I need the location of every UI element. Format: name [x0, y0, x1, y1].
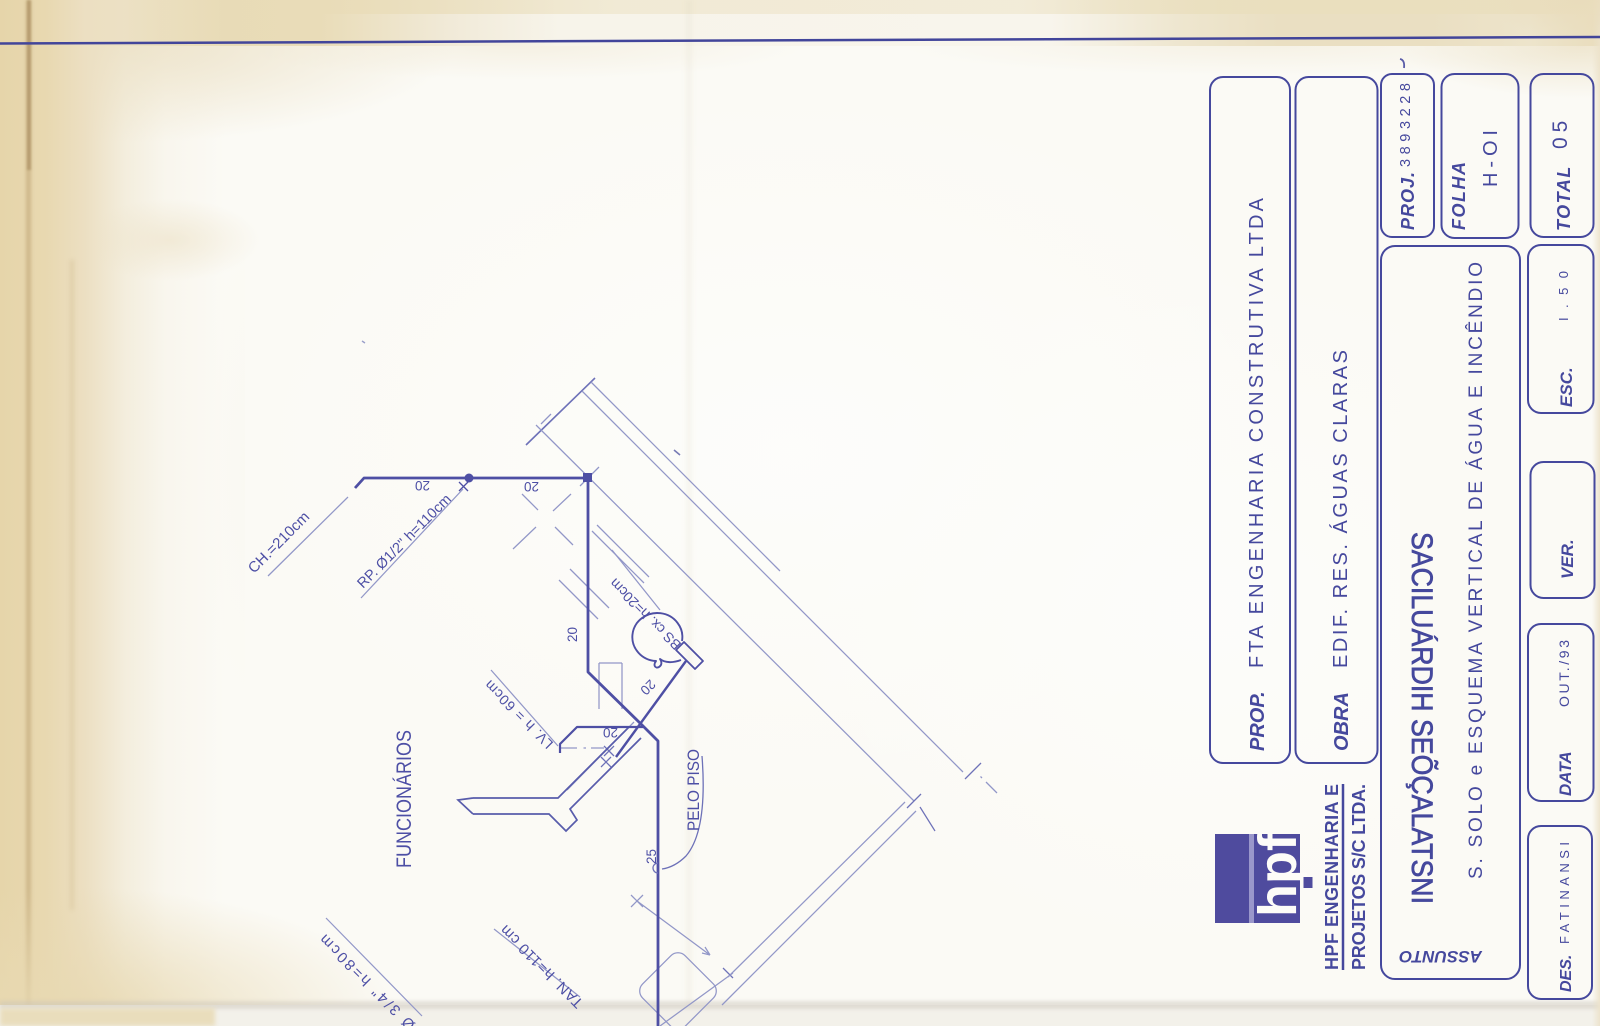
svg-text:TAN. h=110 cm: TAN. h=110 cm — [497, 921, 587, 1011]
svg-text:FATINANSI: FATINANSI — [1557, 842, 1572, 944]
svg-text:20: 20 — [524, 479, 539, 494]
svg-text:FOLHA: FOLHA — [1449, 161, 1469, 231]
svg-text:RP. Ø1/2" h=110cm: RP. Ø1/2" h=110cm — [355, 491, 455, 591]
svg-text:20: 20 — [603, 725, 618, 740]
svg-text:05: 05 — [1549, 116, 1572, 149]
svg-text:CH.=210cm: CH.=210cm — [245, 509, 313, 577]
svg-text:Ø 3/4" h=80cm: Ø 3/4" h=80cm — [316, 931, 419, 1026]
svg-text:LV. h = 60cm: LV. h = 60cm — [481, 677, 556, 752]
svg-text:VER.: VER. — [1558, 539, 1577, 579]
svg-text:HPF ENGENHARIA E: HPF ENGENHARIA E — [1322, 784, 1342, 970]
svg-text:20: 20 — [565, 627, 580, 642]
svg-text:FTA ENGENHARIA CONSTRUTIVA LTD: FTA ENGENHARIA CONSTRUTIVA LTDA — [1246, 197, 1268, 668]
svg-text:PROJ.: PROJ. — [1398, 171, 1418, 230]
svg-text:DATA: DATA — [1556, 751, 1575, 796]
svg-text:H-OI: H-OI — [1480, 130, 1502, 187]
svg-text:PELO PISO: PELO PISO — [685, 749, 703, 831]
svg-text:EDIF. RES. ÁGUAS CLARAS: EDIF. RES. ÁGUAS CLARAS — [1329, 350, 1352, 668]
svg-text:BS cx. h=20cm: BS cx. h=20cm — [606, 575, 684, 653]
svg-text:I.50: I.50 — [1556, 271, 1571, 321]
svg-text:S. SOLO e ESQUEMA VERTICAL DE: S. SOLO e ESQUEMA VERTICAL DE ÁGUA E INC… — [1465, 262, 1487, 879]
svg-text:3893228: 3893228 — [1398, 83, 1414, 167]
svg-text:25: 25 — [644, 849, 659, 864]
svg-text:20: 20 — [415, 478, 430, 493]
svg-text:FUNCIONÁRIOS: FUNCIONÁRIOS — [393, 730, 416, 868]
svg-text:TOTAL: TOTAL — [1554, 165, 1574, 231]
svg-text:SACILUÁRDIH SEÕÇALATSNI: SACILUÁRDIH SEÕÇALATSNI — [1405, 532, 1439, 904]
svg-text:hpf: hpf — [1248, 832, 1308, 917]
svg-text:PROJETOS S/C LTDA.: PROJETOS S/C LTDA. — [1349, 784, 1369, 970]
svg-text:PROP.: PROP. — [1247, 691, 1269, 751]
svg-text:20: 20 — [637, 677, 658, 698]
svg-text:ESC.: ESC. — [1557, 367, 1576, 407]
svg-text:ASSUNTO: ASSUNTO — [1399, 947, 1483, 966]
svg-text:OUT./93: OUT./93 — [1556, 640, 1572, 707]
svg-text:DES.: DES. — [1558, 955, 1575, 992]
svg-text:OBRA: OBRA — [1331, 692, 1353, 751]
